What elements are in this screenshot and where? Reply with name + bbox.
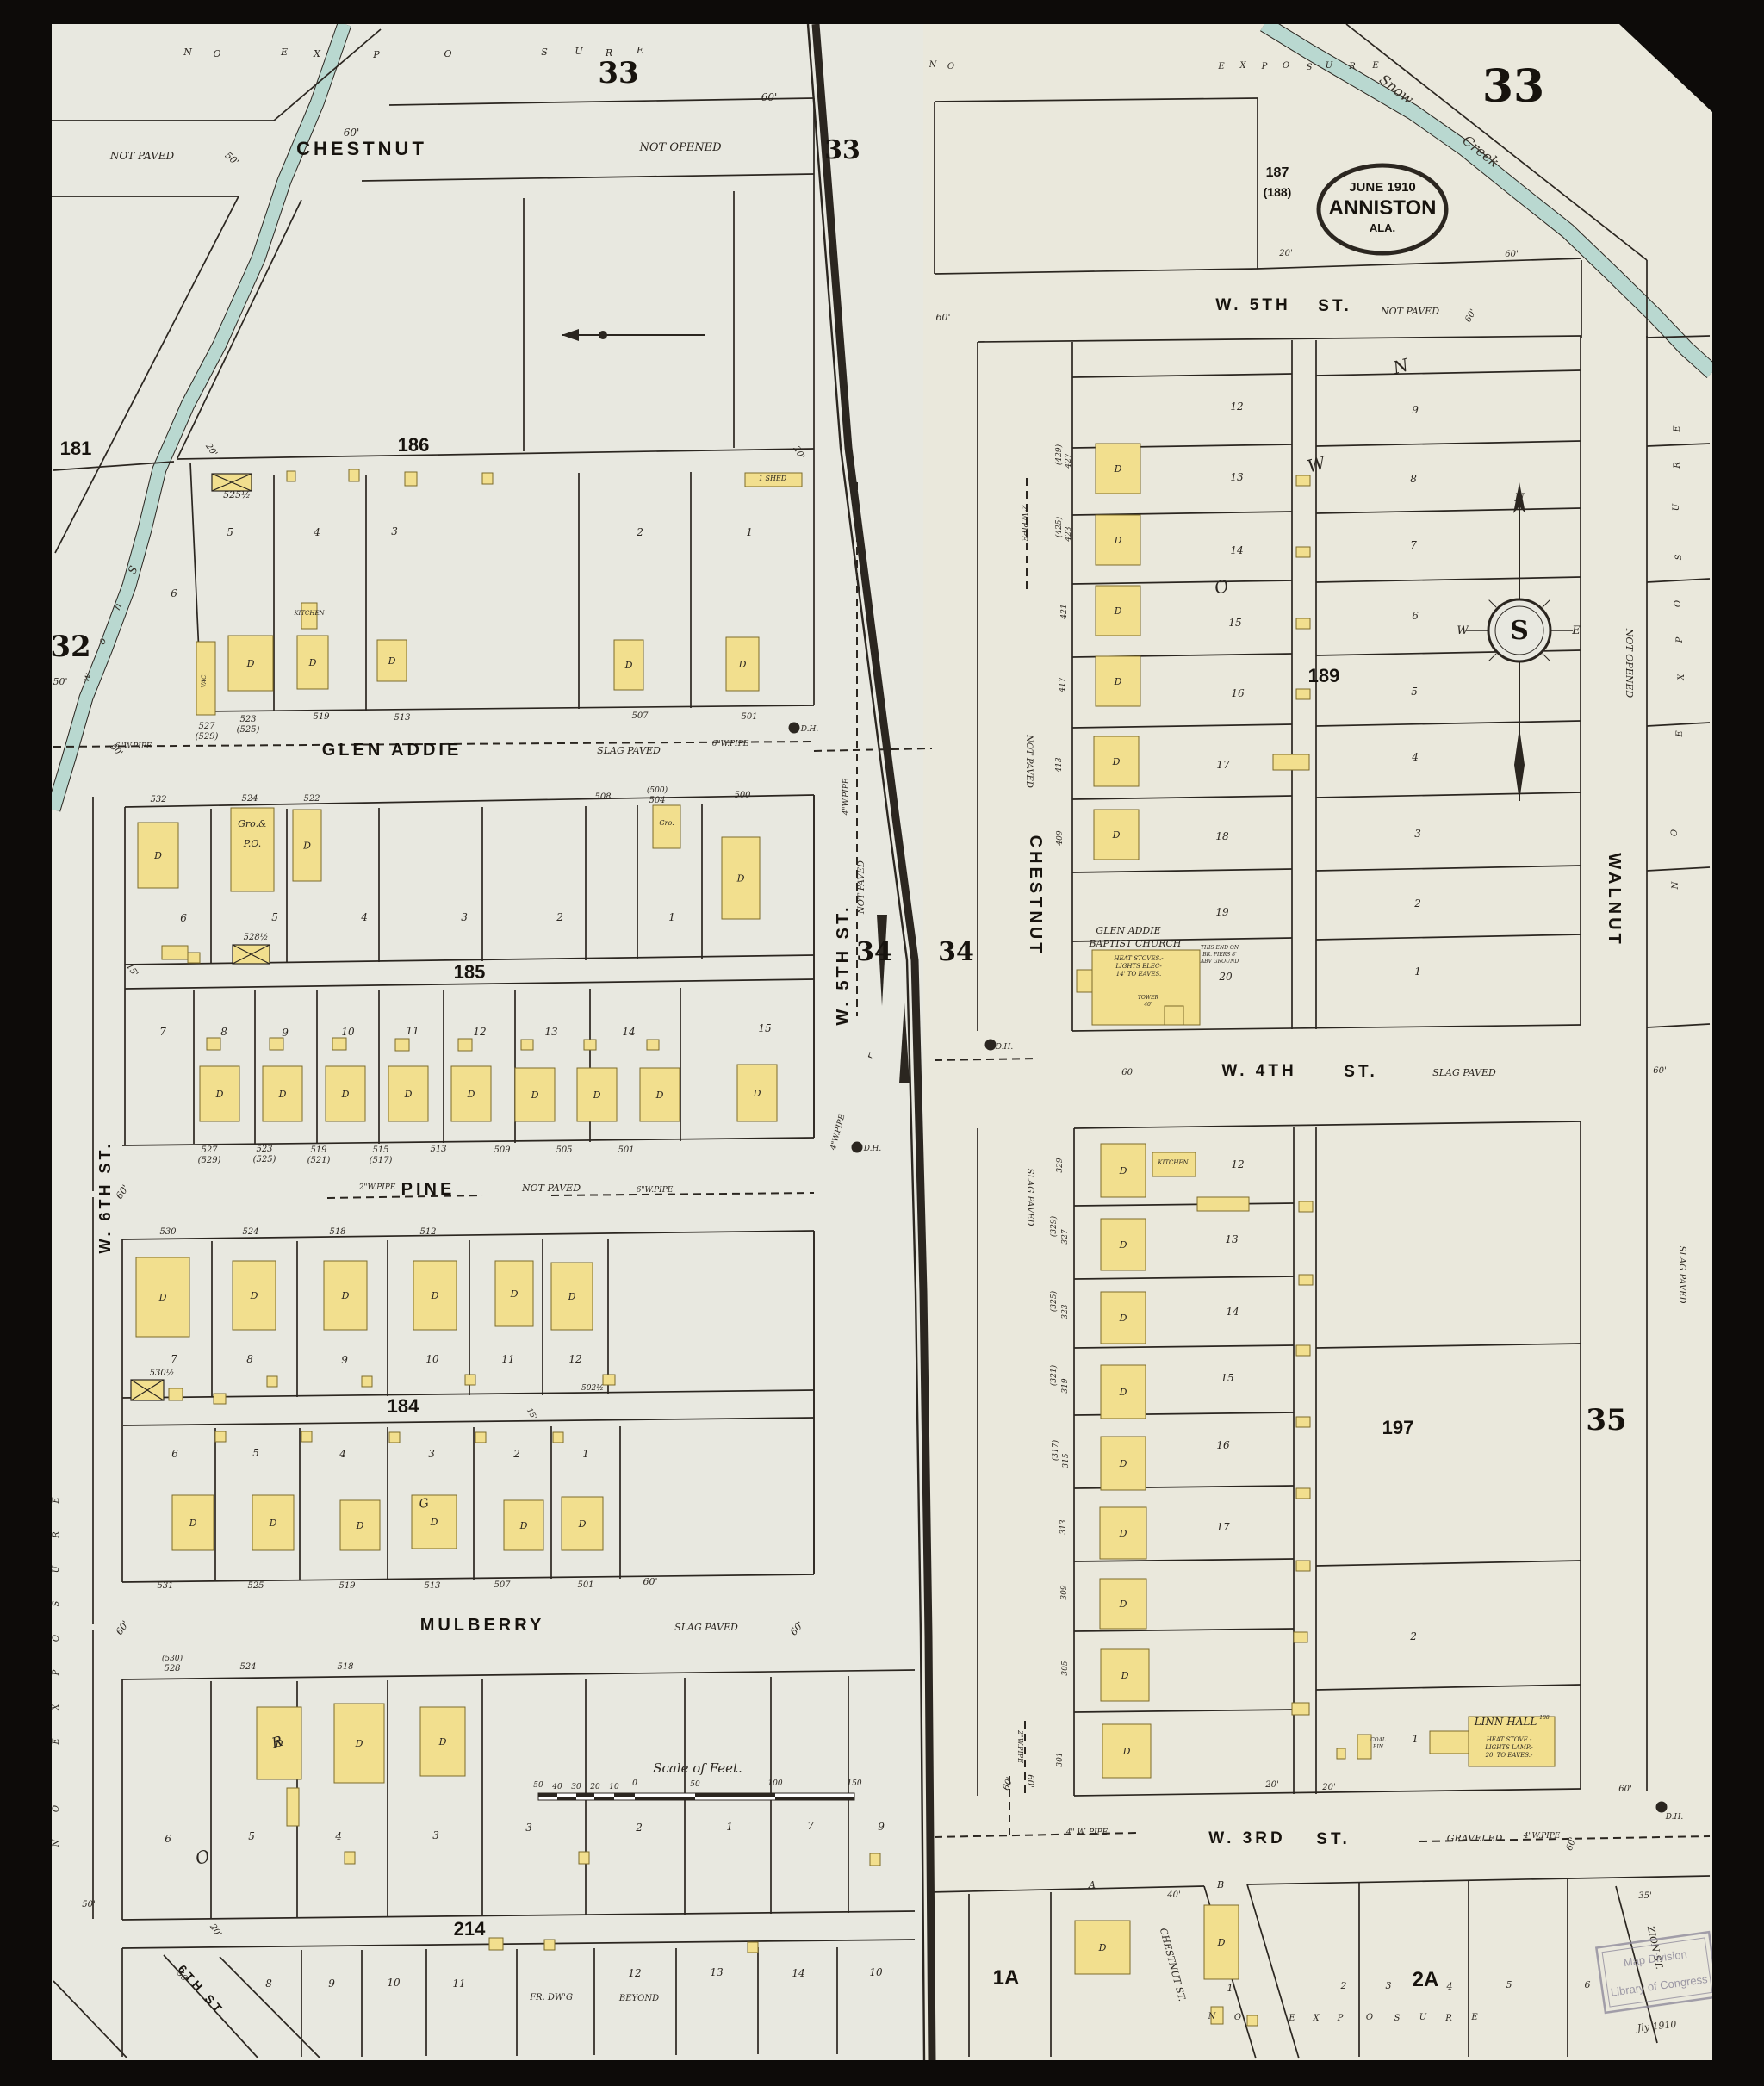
map-text: R xyxy=(1348,62,1356,71)
building xyxy=(465,1375,475,1385)
map-text: 50 xyxy=(533,1781,543,1790)
map-text: 12 xyxy=(473,1026,486,1038)
map-text: 509 xyxy=(494,1145,511,1155)
map-text: 423 xyxy=(1065,526,1073,542)
map-text: P xyxy=(372,49,380,60)
map-text: 4"W.PIPE xyxy=(1523,1832,1561,1841)
building xyxy=(1296,1488,1310,1499)
map-text: 513 xyxy=(424,1581,440,1591)
map-text: 12 xyxy=(628,1967,641,1979)
map-text: NOT PAVED xyxy=(1380,306,1439,317)
scale-bar-segment xyxy=(635,1797,695,1800)
map-text: SLAG PAVED xyxy=(1432,1067,1496,1078)
building xyxy=(1296,689,1310,699)
paper-right-sheet xyxy=(923,24,1712,2060)
map-text: N xyxy=(1208,2012,1217,2021)
building xyxy=(870,1853,880,1866)
map-text: 32 xyxy=(50,630,90,664)
map-text: 501 xyxy=(741,712,757,722)
map-text: LIGHTS ELEC- xyxy=(1115,963,1162,970)
map-text: ST. xyxy=(1316,1830,1350,1848)
map-text: 519 xyxy=(313,712,330,722)
map-text: 525½ xyxy=(223,489,251,500)
map-text: (500) xyxy=(647,785,668,795)
building xyxy=(215,1431,226,1442)
map-text: 33 xyxy=(824,135,860,165)
map-text: 515 xyxy=(372,1145,388,1155)
map-text: 13 xyxy=(1225,1233,1239,1245)
map-text: 1A xyxy=(993,1966,1020,1990)
building xyxy=(1357,1735,1371,1759)
map-text: D.H. xyxy=(1665,1813,1684,1822)
map-text: 1 xyxy=(1227,1983,1233,1994)
map-text: 20' xyxy=(1278,249,1292,258)
photo-mat xyxy=(1712,0,1764,2086)
map-text: (517) xyxy=(370,1156,393,1165)
building-label: D xyxy=(655,1090,664,1101)
map-text: 528½ xyxy=(244,933,269,942)
title-text: ANNISTON xyxy=(1329,196,1437,220)
building xyxy=(1273,754,1309,770)
map-text: O xyxy=(213,48,220,59)
map-text: 10 xyxy=(341,1026,355,1038)
map-text: B xyxy=(1216,1879,1224,1890)
map-text: 309 xyxy=(1060,1585,1069,1599)
map-text: Gro.& xyxy=(238,818,267,829)
map-text: 14 xyxy=(622,1026,635,1038)
building xyxy=(270,1038,283,1050)
map-text: E xyxy=(1371,61,1379,71)
map-text: 7 xyxy=(171,1353,177,1365)
building xyxy=(1165,1006,1183,1025)
title-text: JUNE 1910 xyxy=(1349,180,1416,195)
map-text: 8 xyxy=(1410,473,1417,485)
building-label: D xyxy=(736,873,745,885)
building-label: D xyxy=(341,1290,350,1301)
map-text: 150 xyxy=(847,1779,861,1788)
map-text: 187 xyxy=(1266,165,1289,180)
map-text: 507 xyxy=(494,1580,511,1590)
building-label: D xyxy=(519,1520,528,1531)
building xyxy=(362,1376,372,1387)
map-text: (521) xyxy=(307,1156,331,1165)
map-text: FR. DW'G xyxy=(529,1993,573,2002)
map-text: 100 xyxy=(767,1779,782,1788)
map-text: A xyxy=(1088,1879,1096,1890)
map-text: P xyxy=(1675,636,1685,643)
map-text: 16 xyxy=(1216,1439,1230,1451)
map-text: 12 xyxy=(568,1353,581,1365)
map-text: 6 xyxy=(171,1448,178,1460)
map-text: ABV GROUND xyxy=(1200,959,1239,965)
map-text: 518 xyxy=(337,1662,353,1672)
map-text: 2 xyxy=(512,1448,520,1460)
building-label: D xyxy=(738,659,747,670)
building xyxy=(162,946,188,959)
map-text: 2"W.PIPE xyxy=(1016,1729,1024,1763)
building xyxy=(287,471,295,481)
map-text: CHESTNUT xyxy=(296,138,427,159)
map-text: 20' xyxy=(1264,1780,1278,1790)
map-text: S xyxy=(1394,2014,1401,2023)
map-text: 1 xyxy=(746,526,753,538)
map-text: 525 xyxy=(247,1581,264,1591)
map-text: 34 xyxy=(938,937,974,967)
building-label: D xyxy=(246,658,255,669)
scale-bar-segment xyxy=(695,1793,775,1797)
map-text: GRAVELED xyxy=(1447,1833,1503,1844)
map-text: E xyxy=(1288,2014,1295,2023)
map-text: X xyxy=(1677,674,1686,681)
map-text: 0 xyxy=(632,1779,637,1788)
map-text: HEAT STOVES.- xyxy=(1113,955,1164,962)
map-text: 417 xyxy=(1059,677,1067,692)
scale-bar-segment xyxy=(594,1797,614,1800)
map-text: 5 xyxy=(1411,686,1418,698)
map-text: PINE xyxy=(401,1180,456,1199)
map-text: 4 xyxy=(339,1448,346,1460)
building-label: D xyxy=(1114,676,1122,687)
sanborn-map-sheet: JUNE 1910 ANNISTON ALA. Sheet 33 DDDDDDD… xyxy=(0,0,1764,2086)
map-text: E xyxy=(1217,62,1225,71)
building xyxy=(287,1788,299,1826)
map-text: 2"W.PIPE xyxy=(358,1183,396,1192)
building xyxy=(579,1852,589,1864)
building xyxy=(458,1039,472,1051)
map-text: COAL xyxy=(1370,1737,1386,1743)
building-label: D xyxy=(356,1520,364,1531)
map-text: LINN HALL xyxy=(1474,1716,1537,1728)
map-text: 9 xyxy=(1412,404,1419,416)
map-text: 186 xyxy=(398,434,430,456)
map-text: 60' xyxy=(1025,1774,1034,1787)
building-label: D xyxy=(624,660,633,671)
map-text: 4 xyxy=(334,1830,342,1842)
building-label: D xyxy=(189,1518,197,1529)
map-text: 11 xyxy=(452,1977,465,1990)
building xyxy=(521,1040,533,1050)
map-text: P xyxy=(1261,62,1268,71)
map-text: 518 xyxy=(329,1227,345,1237)
map-text: 313 xyxy=(1059,1519,1068,1534)
building xyxy=(405,472,417,486)
map-text: 12 xyxy=(1230,400,1243,413)
building xyxy=(1296,1561,1310,1571)
map-text: (429) xyxy=(1054,444,1064,465)
building-label: D xyxy=(438,1736,447,1748)
building xyxy=(653,805,680,848)
map-text: 523 xyxy=(239,715,256,724)
map-text: 3 xyxy=(461,911,468,923)
map-text: 7 xyxy=(1410,539,1417,551)
map-text: 7 xyxy=(159,1026,166,1038)
map-text: 60' xyxy=(1505,250,1518,259)
map-text: 8 xyxy=(246,1353,253,1365)
map-text: X xyxy=(313,48,321,59)
map-text: N xyxy=(183,47,192,58)
map-text: 2 xyxy=(636,526,643,538)
map-text: 413 xyxy=(1055,757,1064,773)
map-text: R xyxy=(1673,462,1682,469)
map-text: 2A xyxy=(1413,1968,1439,1991)
map-text: 315 xyxy=(1062,1453,1071,1468)
building-label: D xyxy=(1119,1387,1127,1398)
map-text: 1 xyxy=(1412,1733,1419,1745)
building xyxy=(1197,1197,1249,1211)
building xyxy=(301,1431,312,1442)
map-text: 3 xyxy=(1414,828,1421,840)
building xyxy=(207,1038,220,1050)
map-text: 6 xyxy=(1412,610,1419,622)
map-text: HEAT STOVE.- xyxy=(1486,1736,1532,1743)
map-text: 8 xyxy=(265,1977,272,1990)
building xyxy=(1296,618,1310,629)
map-text: 504 xyxy=(649,796,665,805)
map-text: 4" W. PIPE xyxy=(1065,1828,1109,1837)
map-text: E xyxy=(1675,730,1685,738)
map-text: S xyxy=(541,47,548,58)
map-text: 18 xyxy=(1215,830,1229,842)
map-text: (529) xyxy=(196,732,219,742)
map-text: 10 xyxy=(425,1353,439,1365)
map-text: 6 xyxy=(171,587,177,599)
map-text: NOT PAVED xyxy=(1024,734,1034,788)
map-text: X xyxy=(1239,61,1246,71)
map-text: 14 xyxy=(1226,1306,1239,1318)
map-text: 214 xyxy=(454,1918,486,1940)
map-text: 60' xyxy=(761,91,778,103)
building xyxy=(1337,1748,1345,1759)
building-label: D xyxy=(341,1089,350,1100)
building-label: D xyxy=(1217,1937,1226,1948)
map-text: U xyxy=(1672,503,1681,511)
map-text: 197 xyxy=(1382,1417,1414,1438)
map-text: MULBERRY xyxy=(420,1616,545,1635)
map-text: 4 xyxy=(1446,1981,1453,1992)
map-text: 10 xyxy=(387,1977,401,1989)
map-text: (529) xyxy=(198,1156,221,1165)
map-text: 60' xyxy=(344,127,360,139)
map-text: 3 xyxy=(1386,1980,1392,1991)
map-text: 17 xyxy=(1216,1521,1230,1533)
map-text: P xyxy=(1337,2014,1344,2023)
map-text: O xyxy=(1366,2013,1373,2022)
map-text: X xyxy=(1312,2014,1320,2023)
map-text: O xyxy=(52,1635,61,1642)
map-text: NOT OPENED xyxy=(1624,628,1635,698)
map-text: KITCHEN xyxy=(1157,1159,1189,1166)
building-label: D xyxy=(1121,1670,1129,1681)
map-text: P.O. xyxy=(243,838,262,849)
scale-bar-segment xyxy=(775,1797,854,1800)
map-text: U xyxy=(52,1565,61,1573)
map-text: 13 xyxy=(1230,471,1244,483)
building-label: D xyxy=(1119,1239,1127,1251)
map-text: N xyxy=(929,60,938,70)
building-label: D xyxy=(1119,1528,1127,1539)
building-label: D xyxy=(355,1738,363,1749)
building xyxy=(332,1038,346,1050)
map-text: 519 xyxy=(339,1581,356,1591)
map-text: 4 xyxy=(360,911,368,923)
map-text: 3 xyxy=(428,1448,435,1460)
building-label: D xyxy=(578,1518,587,1530)
building-label: D xyxy=(467,1089,475,1100)
map-text: 3 xyxy=(432,1829,439,1841)
map-text: 30 xyxy=(571,1783,581,1791)
map-text: 5 xyxy=(227,526,233,538)
map-text: X xyxy=(52,1704,61,1711)
map-text: S xyxy=(1307,63,1313,72)
building xyxy=(482,473,493,484)
map-text: 409 xyxy=(1056,830,1065,846)
map-text: O xyxy=(947,62,954,71)
building-label: D xyxy=(250,1290,258,1301)
map-text: 20 xyxy=(589,1783,600,1791)
building xyxy=(1430,1731,1469,1754)
scale-bar-segment xyxy=(538,1793,557,1797)
map-text: 524 xyxy=(239,1662,256,1672)
map-text: CHESTNUT xyxy=(1026,835,1045,957)
building xyxy=(1292,1703,1309,1715)
map-text: 15 xyxy=(1221,1372,1233,1384)
building-label: D xyxy=(430,1517,438,1528)
map-text: 40' xyxy=(1166,1890,1180,1900)
map-text: 4 xyxy=(1411,751,1419,763)
map-text: 10 xyxy=(869,1966,883,1978)
map-text: 502½ xyxy=(581,1383,604,1393)
compass-cardinal: S xyxy=(1516,762,1524,775)
map-text: 20 xyxy=(1218,971,1233,983)
building xyxy=(214,1394,226,1404)
double-hydrant-dot xyxy=(985,1040,997,1051)
map-text: 1 xyxy=(726,1821,733,1833)
map-text: 9 xyxy=(878,1821,885,1833)
map-text: 3 xyxy=(525,1822,532,1834)
building xyxy=(389,1432,400,1443)
map-text: 189 xyxy=(1308,665,1340,686)
map-text: E xyxy=(280,47,288,58)
map-text: 319 xyxy=(1061,1378,1070,1393)
map-text: 13 xyxy=(710,1966,724,1978)
map-text: 507 xyxy=(631,711,649,721)
map-text: 4 xyxy=(313,526,320,538)
map-text: SLAG PAVED xyxy=(1677,1246,1686,1304)
map-text: 184 xyxy=(388,1395,419,1417)
photo-mat xyxy=(0,2060,1764,2086)
map-text: 3 xyxy=(391,525,398,537)
map-text: E xyxy=(636,45,643,56)
map-text: 305 xyxy=(1061,1661,1070,1675)
map-text: 60' xyxy=(1618,1785,1631,1794)
map-text: E xyxy=(1673,425,1682,433)
map-text: O xyxy=(1674,600,1683,607)
map-text: 34 xyxy=(856,937,892,967)
map-text: 33 xyxy=(1482,60,1544,113)
map-text: 12 xyxy=(1231,1158,1244,1170)
building xyxy=(584,1040,596,1050)
building xyxy=(489,1938,503,1950)
building xyxy=(1296,1345,1310,1356)
map-text: SLAG PAVED xyxy=(1025,1169,1034,1226)
building xyxy=(1294,1632,1307,1642)
map-text: 5 xyxy=(1506,1979,1512,1990)
building xyxy=(395,1039,409,1051)
map-text: E xyxy=(52,1738,61,1746)
building-label: D xyxy=(308,657,317,668)
map-text: 60' xyxy=(1121,1068,1134,1077)
building xyxy=(188,953,200,963)
building xyxy=(603,1375,615,1385)
map-text: (321) xyxy=(1049,1364,1059,1386)
map-text: 188 xyxy=(1539,1715,1550,1721)
map-text: D.H. xyxy=(800,725,819,734)
map-text: (188) xyxy=(1264,185,1292,199)
map-text: 527 xyxy=(198,722,215,731)
map-text: D.H. xyxy=(863,1145,882,1153)
map-text: VAC. xyxy=(201,674,208,688)
map-text: 1 SHED xyxy=(759,475,787,482)
map-text: BR. PIERS 8' xyxy=(1202,952,1237,958)
map-text: 14' TO EAVES. xyxy=(1116,971,1161,978)
map-text: O xyxy=(444,48,451,59)
map-text: 524 xyxy=(241,794,258,804)
map-canvas: DDDDDDDDDDDDDDDDDDDDDDDDDDDDDDDDDDDDDDDD… xyxy=(0,0,1764,2086)
map-text: 530 xyxy=(159,1227,177,1237)
map-text: 15 xyxy=(758,1022,771,1034)
map-text: (317) xyxy=(1051,1439,1060,1461)
map-text: S xyxy=(52,1600,61,1606)
building-label: D xyxy=(1119,1165,1127,1176)
building-label: D xyxy=(431,1290,439,1301)
map-text: U xyxy=(1326,61,1333,71)
map-text: 181 xyxy=(60,438,92,459)
map-text: W. 5TH ST. xyxy=(834,903,853,1025)
map-text: 50 xyxy=(690,1780,700,1789)
map-text: 5 xyxy=(248,1830,255,1842)
map-text: 185 xyxy=(454,961,486,983)
map-text: (325) xyxy=(1049,1290,1059,1312)
building-label: D xyxy=(1114,535,1122,546)
map-text: 519 xyxy=(310,1145,327,1155)
map-text: BIN xyxy=(1372,1744,1384,1750)
map-text: 513 xyxy=(394,713,410,723)
double-hydrant-dot xyxy=(1656,1802,1668,1813)
map-text: E xyxy=(1470,2013,1478,2022)
building-label: D xyxy=(568,1291,576,1302)
map-text: 530½ xyxy=(150,1369,175,1378)
building xyxy=(1296,1417,1310,1427)
map-text: 40 xyxy=(551,1783,562,1791)
building xyxy=(1299,1201,1313,1212)
map-text: 16 xyxy=(1231,687,1245,699)
map-text: 505 xyxy=(556,1145,572,1155)
map-text: 5 xyxy=(252,1447,259,1459)
building-label: D xyxy=(153,850,162,861)
map-text: 33 xyxy=(598,56,638,90)
survey-arrow-dot xyxy=(599,331,607,339)
building-label: D xyxy=(510,1288,519,1300)
map-text: NOT PAVED xyxy=(521,1183,581,1194)
building xyxy=(475,1432,486,1443)
map-text: NOT PAVED xyxy=(109,150,175,162)
building-label: D xyxy=(753,1088,761,1099)
map-text: 2 xyxy=(1413,897,1421,910)
map-text: 327 xyxy=(1061,1229,1070,1244)
map-text: D.H. xyxy=(995,1043,1014,1052)
map-text: 1 xyxy=(1414,965,1421,978)
map-text: 2 xyxy=(1409,1630,1417,1642)
